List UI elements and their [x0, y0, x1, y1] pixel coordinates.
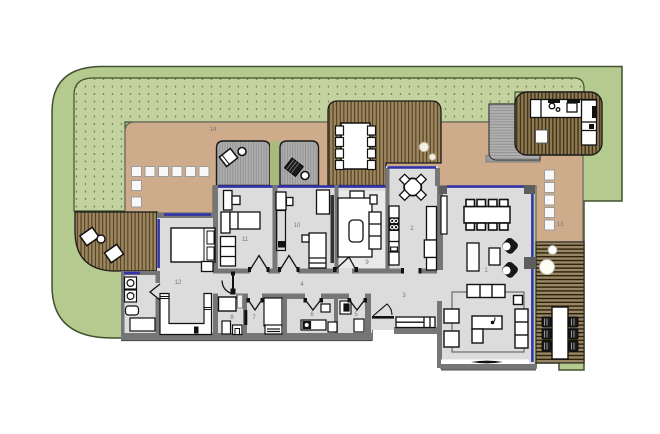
svg-text:10: 10 [294, 223, 301, 229]
svg-text:12: 12 [175, 280, 182, 286]
svg-text:14: 14 [210, 127, 217, 133]
svg-text:13: 13 [557, 222, 564, 228]
svg-text:11: 11 [242, 237, 249, 243]
